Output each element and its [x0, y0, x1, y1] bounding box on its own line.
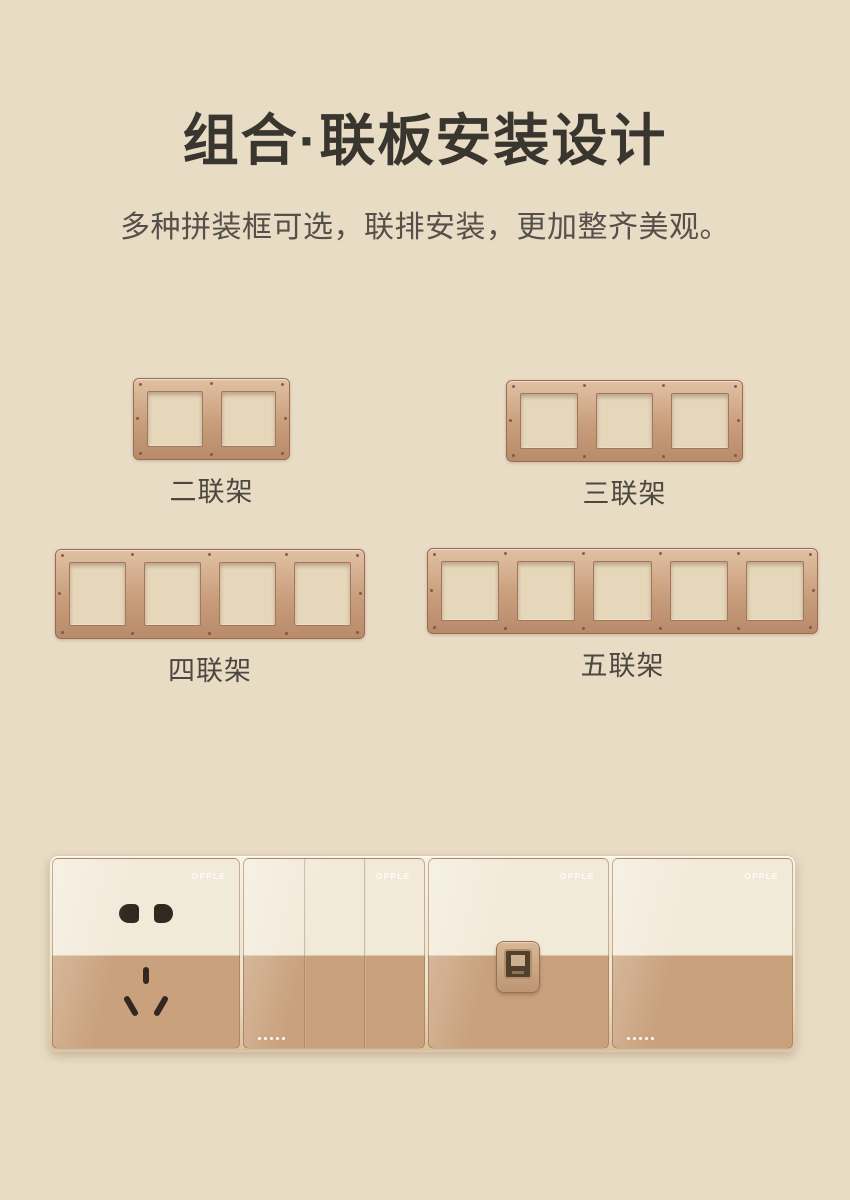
screw-hole: [734, 454, 737, 457]
screw-hole: [737, 552, 740, 555]
screw-hole: [662, 455, 665, 458]
screw-hole: [131, 553, 134, 556]
screw-hole: [356, 631, 359, 634]
screw-hole: [285, 553, 288, 556]
screw-hole: [131, 632, 134, 635]
screw-hole: [737, 627, 740, 630]
frame-aperture: [596, 393, 654, 449]
promo-page: 组合·联板安装设计 多种拼装框可选，联排安装，更加整齐美观。 二联架 三联架 四…: [0, 0, 850, 1200]
screw-hole: [659, 627, 662, 630]
socket-slot-neutral: [153, 995, 169, 1017]
switch-panel-3gang: OPPLE: [243, 858, 424, 1049]
screw-hole: [809, 553, 812, 556]
brand-logo: OPPLE: [744, 872, 779, 881]
screw-hole: [139, 383, 142, 386]
screw-hole: [812, 589, 815, 592]
page-subtitle: 多种拼装框可选，联排安装，更加整齐美观。: [0, 202, 850, 246]
mounting-frame-4gang: [55, 549, 365, 639]
network-jack: [496, 941, 540, 993]
screw-hole: [583, 384, 586, 387]
screw-hole: [136, 417, 139, 420]
screw-hole: [208, 632, 211, 635]
screw-hole: [285, 632, 288, 635]
screw-hole: [356, 554, 359, 557]
frame-aperture: [147, 391, 203, 447]
frame-aperture: [441, 561, 499, 621]
frame-4gang-label: 四联架: [55, 649, 365, 688]
frame-5gang-label: 五联架: [427, 644, 818, 683]
screw-hole: [582, 627, 585, 630]
socket-slot-earth: [143, 967, 149, 984]
screw-hole: [430, 589, 433, 592]
mounting-frame-3gang: [506, 380, 743, 462]
frame-aperture: [746, 561, 804, 621]
frame-aperture: [593, 561, 651, 621]
screw-hole: [139, 452, 142, 455]
frame-aperture: [219, 562, 276, 626]
network-jack-shutter: [511, 955, 525, 966]
indicator-dot: [270, 1037, 273, 1040]
frame-5gang-group: 五联架: [427, 548, 818, 683]
socket-slot-live: [123, 995, 139, 1017]
screw-hole: [281, 383, 284, 386]
screw-hole: [662, 384, 665, 387]
mounting-frame-5gang: [427, 548, 818, 634]
screw-hole: [208, 553, 211, 556]
socket-panel-5hole: OPPLE: [52, 858, 240, 1049]
mounting-frame-2gang: [133, 378, 290, 460]
frame-aperture: [294, 562, 351, 626]
indicator-dot: [276, 1037, 279, 1040]
screw-hole: [504, 627, 507, 630]
screw-hole: [737, 419, 740, 422]
screw-hole: [582, 552, 585, 555]
frame-aperture: [671, 393, 729, 449]
indicator-dot: [633, 1037, 636, 1040]
screw-hole: [433, 626, 436, 629]
screw-hole: [210, 453, 213, 456]
indicator-dot: [645, 1037, 648, 1040]
indicator-dots: [258, 1037, 285, 1040]
socket-hole-right: [154, 904, 173, 923]
frame-aperture: [69, 562, 126, 626]
screw-hole: [58, 592, 61, 595]
indicator-dot: [264, 1037, 267, 1040]
frame-aperture: [517, 561, 575, 621]
indicator-dot: [627, 1037, 630, 1040]
indicator-dot: [651, 1037, 654, 1040]
screw-hole: [512, 454, 515, 457]
rocker-seam: [304, 859, 306, 1048]
screw-hole: [61, 631, 64, 634]
screw-hole: [359, 592, 362, 595]
frame-2gang-label: 二联架: [133, 470, 290, 509]
indicator-dots: [627, 1037, 654, 1040]
indicator-dot: [282, 1037, 285, 1040]
screw-hole: [281, 452, 284, 455]
screw-hole: [433, 553, 436, 556]
frame-aperture: [520, 393, 578, 449]
frame-3gang-label: 三联架: [506, 472, 743, 511]
brand-logo: OPPLE: [192, 872, 227, 881]
screw-hole: [659, 552, 662, 555]
frame-3gang-group: 三联架: [506, 380, 743, 511]
network-jack-latch: [512, 971, 524, 974]
indicator-dot: [639, 1037, 642, 1040]
screw-hole: [210, 382, 213, 385]
frame-2gang-group: 二联架: [133, 378, 290, 509]
network-panel: OPPLE: [428, 858, 609, 1049]
screw-hole: [509, 419, 512, 422]
screw-hole: [512, 385, 515, 388]
indicator-dot: [258, 1037, 261, 1040]
socket-hole-left: [119, 904, 139, 923]
page-title: 组合·联板安装设计: [0, 96, 850, 177]
frame-4gang-group: 四联架: [55, 549, 365, 688]
rocker-seam: [364, 859, 366, 1048]
screw-hole: [61, 554, 64, 557]
brand-logo: OPPLE: [376, 872, 411, 881]
frame-aperture: [670, 561, 728, 621]
screw-hole: [734, 385, 737, 388]
frame-aperture: [144, 562, 201, 626]
panel-strip-photo: OPPLE OPPLE OPPLE OPPLE: [49, 855, 796, 1052]
frame-aperture: [221, 391, 277, 447]
network-jack-opening: [504, 949, 532, 979]
brand-logo: OPPLE: [560, 872, 595, 881]
screw-hole: [504, 552, 507, 555]
screw-hole: [809, 626, 812, 629]
screw-hole: [583, 455, 586, 458]
switch-panel-1gang: OPPLE: [612, 858, 793, 1049]
screw-hole: [284, 417, 287, 420]
